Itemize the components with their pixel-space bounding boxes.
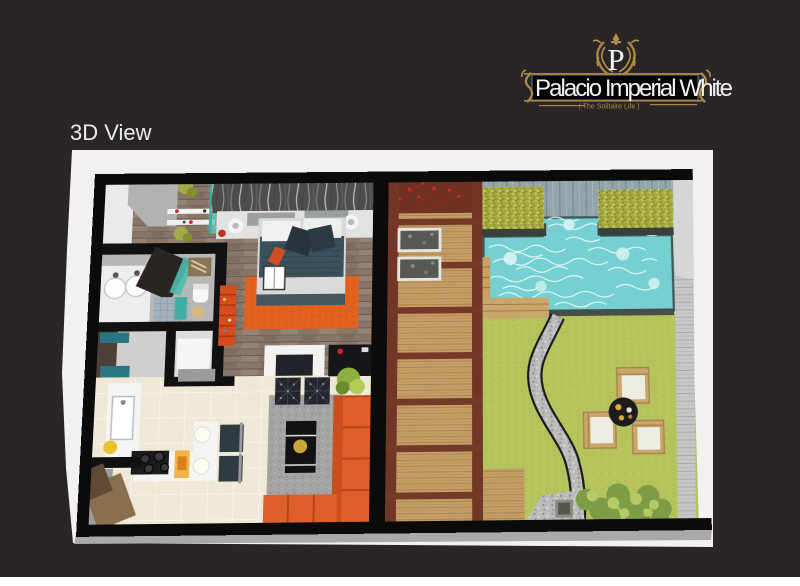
svg-text:P: P — [607, 42, 624, 77]
svg-text:Palacio Imperial White: Palacio Imperial White — [535, 75, 733, 102]
svg-text:( The Solitaire Life ): ( The Solitaire Life ) — [578, 104, 639, 111]
